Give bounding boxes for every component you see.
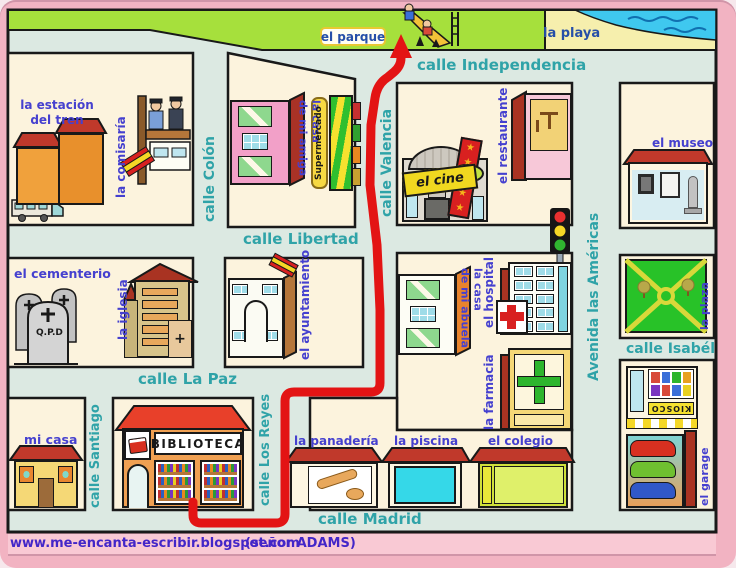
kiosk-magazine-rack	[648, 369, 694, 399]
kiosk-sign: KIOSCO	[648, 402, 694, 415]
pool-window	[394, 466, 456, 504]
stacked-car-green	[630, 461, 676, 478]
townhall-window	[262, 284, 278, 295]
supermarket-label: Supermercado	[314, 100, 324, 186]
townhall-side	[284, 272, 296, 358]
library-sign: BIBLIOTECA	[154, 432, 242, 455]
pool-roof	[382, 448, 470, 462]
supermarket-awning	[329, 95, 353, 191]
garage-side	[684, 430, 697, 508]
street-isabel: calle Isabél	[626, 341, 715, 357]
garage-label: el garage	[698, 446, 711, 506]
park-label: el parque	[321, 30, 385, 44]
supermarket-produce	[352, 102, 361, 186]
plaza-label: la plaza	[698, 274, 711, 330]
pool-label: la piscina	[394, 434, 458, 448]
street-santiago: calle Santiago	[88, 412, 103, 508]
my-house-label: mi casa	[24, 432, 77, 447]
museum-frame-1	[638, 174, 654, 194]
friends-house-window-bottom	[238, 156, 272, 177]
cinema-poster-right	[472, 196, 484, 220]
townhall-label: el ayuntamiento	[298, 262, 312, 360]
plaza-square	[626, 260, 706, 332]
street-valencia: calle Valencia	[379, 112, 395, 217]
bakery-roof	[286, 448, 382, 462]
street-madrid: calle Madrid	[318, 510, 422, 528]
school-label: el colegio	[488, 434, 553, 448]
school-roof	[470, 448, 574, 462]
stacked-car-blue	[630, 482, 676, 499]
kiosk-label: KIOSCO	[651, 404, 691, 413]
green-cross-icon	[517, 376, 561, 387]
red-cross-icon	[500, 312, 524, 321]
footer-bar: www.me-encanta-escribir.blogspot.com (se…	[8, 534, 716, 556]
grandmas-house-label: la casade mi abuela	[458, 268, 483, 356]
church-annex: +	[168, 320, 192, 358]
library-label: BIBLIOTECA	[151, 437, 246, 451]
hospital-label: el hospital	[482, 254, 496, 328]
townhall-arch-door	[244, 300, 268, 342]
museum-statue-base	[684, 208, 702, 214]
museum-frame-2	[660, 172, 680, 198]
train-station-building	[16, 147, 60, 205]
station-roof-left	[14, 133, 62, 147]
my-house-door	[38, 478, 54, 508]
library-roof	[116, 406, 250, 430]
beach-label: la playa	[543, 26, 600, 41]
street-libertad: calle Libertad	[243, 230, 359, 248]
restaurant-label: el restaurante	[496, 92, 510, 184]
library-book-logo	[124, 430, 151, 460]
kiosk-door	[630, 370, 644, 412]
kiosk-awning	[626, 418, 698, 429]
map-poster: ★★ ★ ★★ ◎ el cine +	[0, 0, 736, 568]
star-icon: ★	[465, 142, 476, 154]
pharmacy-side	[500, 354, 510, 430]
book-icon	[128, 436, 148, 453]
grandmas-window-top	[406, 280, 440, 300]
stacked-car-red	[630, 440, 676, 457]
library-window-shelves-right	[200, 460, 241, 505]
pharmacy-label: la farmacia	[482, 348, 496, 430]
restaurant-table-leg	[548, 115, 551, 129]
grandmas-window-mid	[410, 306, 436, 322]
my-house-roof	[10, 446, 82, 460]
star-icon: ★	[454, 202, 465, 214]
townhall-window	[232, 284, 248, 295]
restaurant-chair-icon	[536, 120, 539, 132]
library-arch-door	[127, 464, 149, 508]
friends-house-window-top	[238, 106, 272, 127]
train-station-building-2	[58, 133, 104, 205]
street-americas: Avenida las Américas	[586, 226, 602, 381]
museum-label: el museo	[652, 136, 713, 150]
bread-icon	[346, 488, 364, 500]
cinema-label: el cine	[415, 170, 465, 191]
station-label: la estacióndel tren	[14, 98, 100, 128]
pharmacy-bottom	[514, 414, 564, 426]
footer-credit: (señor ADAMS)	[245, 536, 356, 551]
street-la-paz: calle La Paz	[138, 370, 237, 388]
street-los-reyes: calle Los Reyes	[258, 400, 273, 506]
cinema-door	[424, 198, 450, 220]
grandmas-window-bottom	[406, 328, 440, 348]
school-side-strip	[482, 466, 492, 504]
police-label: la comisaría	[114, 110, 128, 198]
cemetery-label: el cementerio	[14, 266, 111, 281]
tombstone-text: Q.P.D	[36, 328, 63, 338]
hospital-windows-right	[558, 266, 568, 332]
my-house-window	[58, 466, 73, 483]
friends-house-window-mid	[242, 133, 268, 150]
bakery-label: la panadería	[294, 434, 379, 448]
my-house-window	[19, 466, 34, 483]
park-label-box: el parque	[320, 27, 386, 46]
church-label: la iglesia	[116, 268, 130, 340]
library-window-shelves-left	[154, 460, 195, 505]
street-independencia: calle Independencia	[417, 56, 586, 74]
street-colon: calle Colón	[202, 132, 218, 222]
school-interior	[494, 466, 564, 504]
museum-statue-icon	[688, 176, 698, 208]
